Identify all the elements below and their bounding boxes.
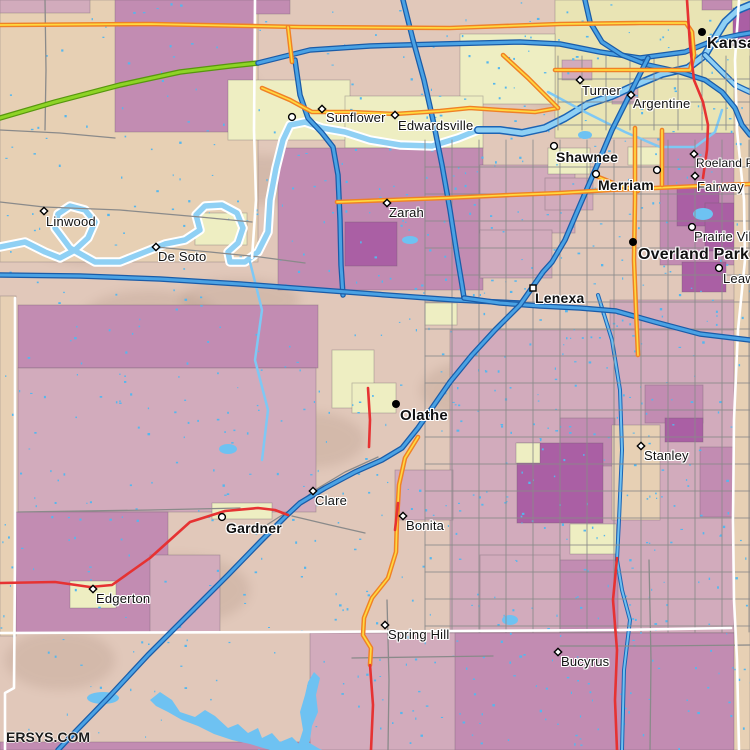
census-block — [516, 443, 540, 463]
census-block — [480, 555, 560, 633]
watermark: ERSYS.COM — [6, 729, 90, 745]
poi-marker — [654, 167, 661, 174]
city-label-gardner[interactable]: Gardner — [226, 521, 282, 535]
city-label-spring-hill[interactable]: Spring Hill — [388, 628, 449, 641]
city-marker-gardner[interactable] — [219, 514, 226, 521]
city-label-bonita[interactable]: Bonita — [406, 519, 444, 532]
city-label-lenexa[interactable]: Lenexa — [535, 291, 584, 305]
census-block — [560, 560, 618, 632]
city-label-de-soto[interactable]: De Soto — [158, 250, 206, 263]
city-label-edgerton[interactable]: Edgerton — [96, 592, 150, 605]
city-label-overland-park[interactable]: Overland Park — [638, 247, 749, 263]
census-block — [702, 0, 732, 10]
city-label-olathe[interactable]: Olathe — [400, 408, 448, 423]
city-marker-overland-park[interactable] — [629, 238, 637, 246]
census-block — [0, 512, 168, 633]
city-marker-leawood[interactable] — [716, 265, 723, 272]
city-label-fairway[interactable]: Fairway — [697, 180, 744, 193]
city-label-turner[interactable]: Turner — [582, 84, 621, 97]
city-label-bucyrus[interactable]: Bucyrus — [561, 655, 609, 668]
city-label-argentine[interactable]: Argentine — [633, 97, 690, 110]
census-block — [665, 418, 703, 442]
city-label-roeland-park[interactable]: Roeland Park — [696, 157, 750, 169]
census-block — [645, 385, 703, 423]
city-marker-kansas-city[interactable] — [698, 28, 706, 36]
city-label-zarah[interactable]: Zarah — [389, 206, 424, 219]
census-block — [345, 222, 397, 266]
city-label-sunflower[interactable]: Sunflower — [326, 111, 386, 124]
map-viewport: Kansas CityTurnerArgentineSunflowerEdwar… — [0, 0, 750, 750]
city-label-stanley[interactable]: Stanley — [644, 449, 689, 462]
city-marker-olathe[interactable] — [392, 400, 400, 408]
census-block — [455, 633, 750, 750]
city-label-linwood[interactable]: Linwood — [46, 215, 96, 228]
census-block — [352, 383, 396, 413]
city-label-kansas-city[interactable]: Kansas City — [707, 36, 750, 52]
city-label-merriam[interactable]: Merriam — [598, 178, 654, 192]
poi-marker — [289, 114, 296, 121]
city-label-shawnee[interactable]: Shawnee — [556, 150, 618, 164]
city-label-clare[interactable]: Clare — [315, 494, 347, 507]
city-label-prairie-village[interactable]: Prairie Village — [694, 230, 750, 243]
city-label-leawood[interactable]: Leawood — [723, 272, 750, 285]
census-block — [18, 368, 316, 512]
census-block — [18, 305, 318, 368]
city-label-edwardsville[interactable]: Edwardsville — [398, 119, 473, 132]
